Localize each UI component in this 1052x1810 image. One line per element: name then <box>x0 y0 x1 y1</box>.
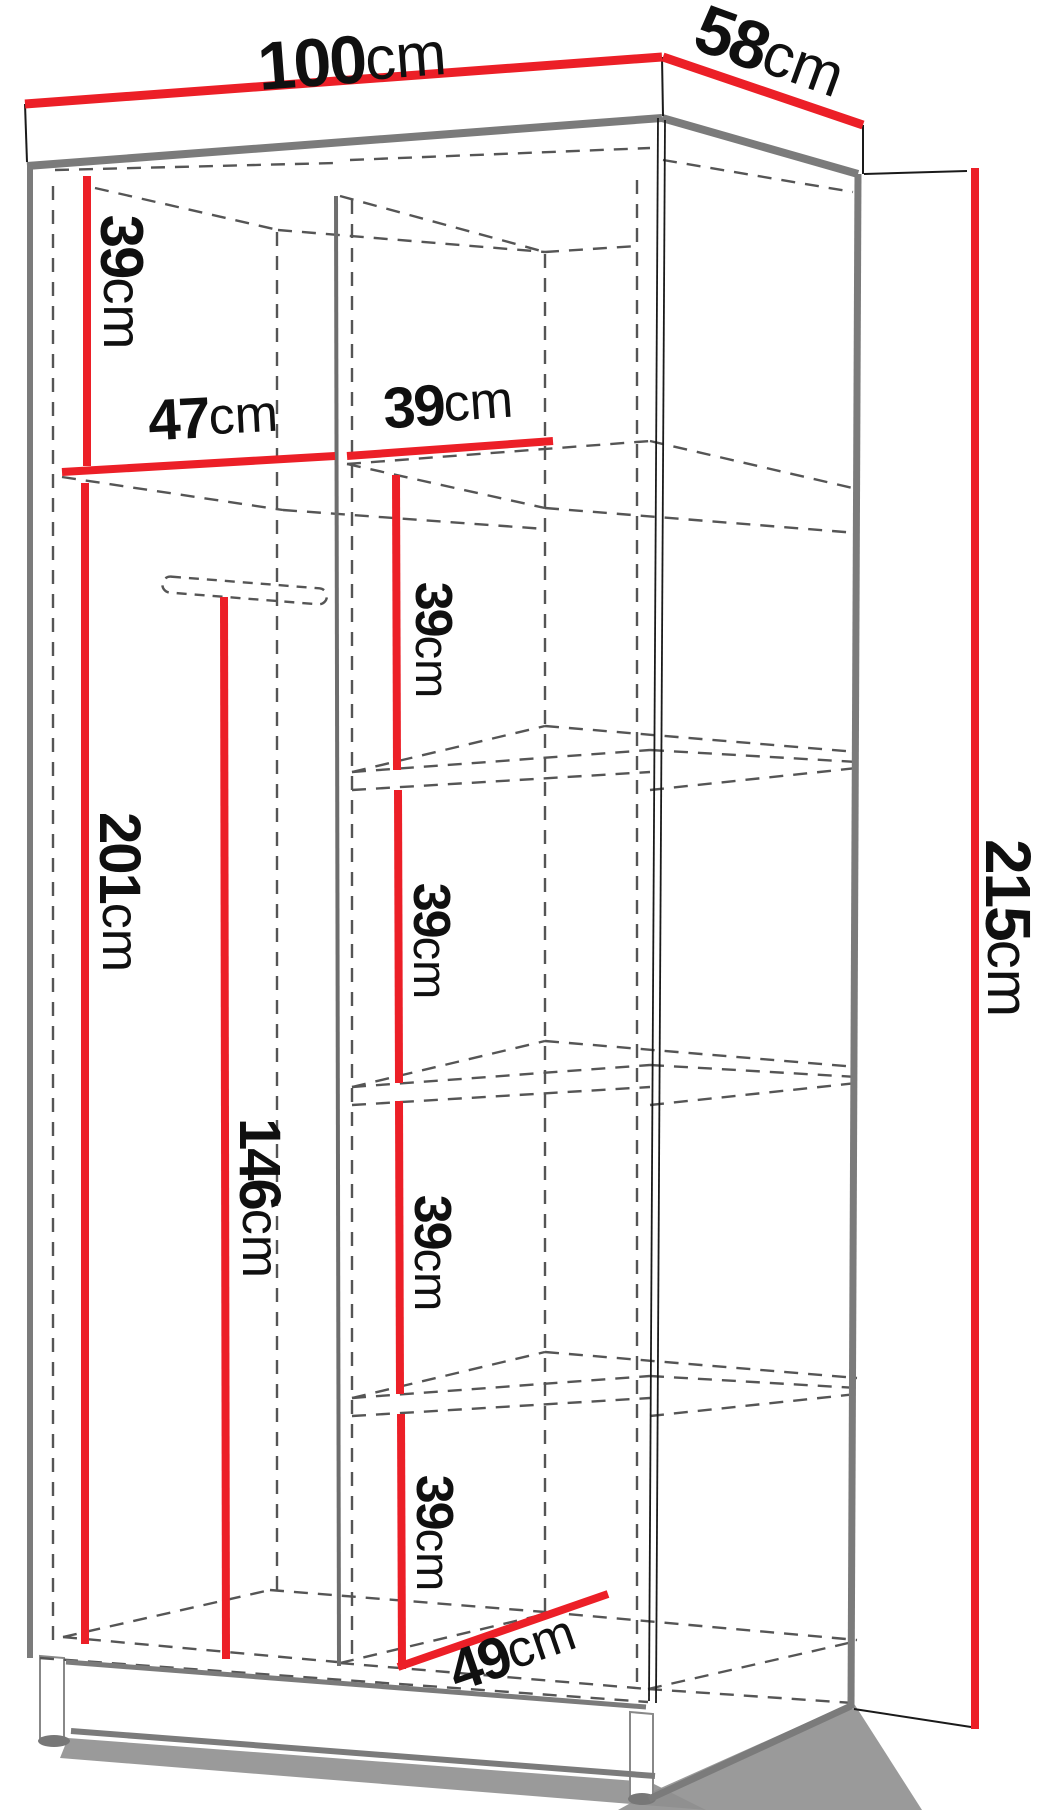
label-39cm-bay3: 39cm <box>403 1195 461 1312</box>
foot-left <box>40 1656 64 1740</box>
label-47cm-value: 47 <box>146 385 210 453</box>
label-39cm-bay4-unit: cm <box>408 1529 461 1592</box>
foot-right <box>630 1712 653 1798</box>
wardrobe-dimension-diagram: 100cm58cm39cm47cm39cm201cm146cm39cm39cm3… <box>0 0 1052 1810</box>
label-39cm-bay4: 39cm <box>405 1475 463 1592</box>
dim-line-39cm-seg1 <box>396 475 397 770</box>
label-47cm: 47cm <box>146 381 279 453</box>
label-39cm-bay2: 39cm <box>402 883 460 1000</box>
label-215cm-value: 215 <box>972 839 1044 940</box>
label-39cm-bay1: 39cm <box>404 582 462 699</box>
dim-line-39cm-seg2 <box>398 790 399 1083</box>
label-146cm: 146cm <box>228 1118 293 1278</box>
dim-line-146cm <box>224 597 226 1659</box>
wardrobe-dimension-diagram-page: 100cm58cm39cm47cm39cm201cm146cm39cm39cm3… <box>0 0 1052 1810</box>
label-100cm-unit: cm <box>362 19 448 93</box>
label-39cm-bay1-unit: cm <box>407 636 460 699</box>
label-39cm-top-left-unit: cm <box>92 277 152 349</box>
label-201cm: 201cm <box>88 812 153 972</box>
label-39cm-top-left-value: 39 <box>89 215 156 278</box>
label-215cm: 215cm <box>972 839 1044 1017</box>
label-39cm-bay2-unit: cm <box>405 937 458 1000</box>
label-39cm-bay3-unit: cm <box>406 1249 459 1312</box>
dim-line-39cm-seg4 <box>401 1414 402 1669</box>
dim-line-39cm-seg3 <box>399 1101 400 1394</box>
shadow-foot-left <box>38 1735 70 1747</box>
edge-toppanel-corner <box>662 57 663 116</box>
label-39cm-top-left: 39cm <box>89 215 156 350</box>
label-39cm-bay2-value: 39 <box>402 883 460 937</box>
diagram-background <box>0 0 1052 1810</box>
label-146cm-unit: cm <box>231 1209 289 1278</box>
label-146cm-value: 146 <box>228 1118 293 1210</box>
label-39cm-bay1-value: 39 <box>404 582 462 636</box>
label-215cm-unit: cm <box>976 940 1041 1017</box>
panel-right-side <box>649 117 858 1707</box>
label-39cm-bay4-value: 39 <box>405 1475 463 1529</box>
label-47cm-unit: cm <box>207 385 279 447</box>
label-39cm-width-unit: cm <box>442 371 515 434</box>
label-39cm-width-value: 39 <box>381 372 447 441</box>
label-39cm-bay3-value: 39 <box>403 1195 461 1249</box>
label-201cm-unit: cm <box>91 903 149 972</box>
label-201cm-value: 201 <box>88 812 153 904</box>
label-100cm-value: 100 <box>255 21 368 105</box>
